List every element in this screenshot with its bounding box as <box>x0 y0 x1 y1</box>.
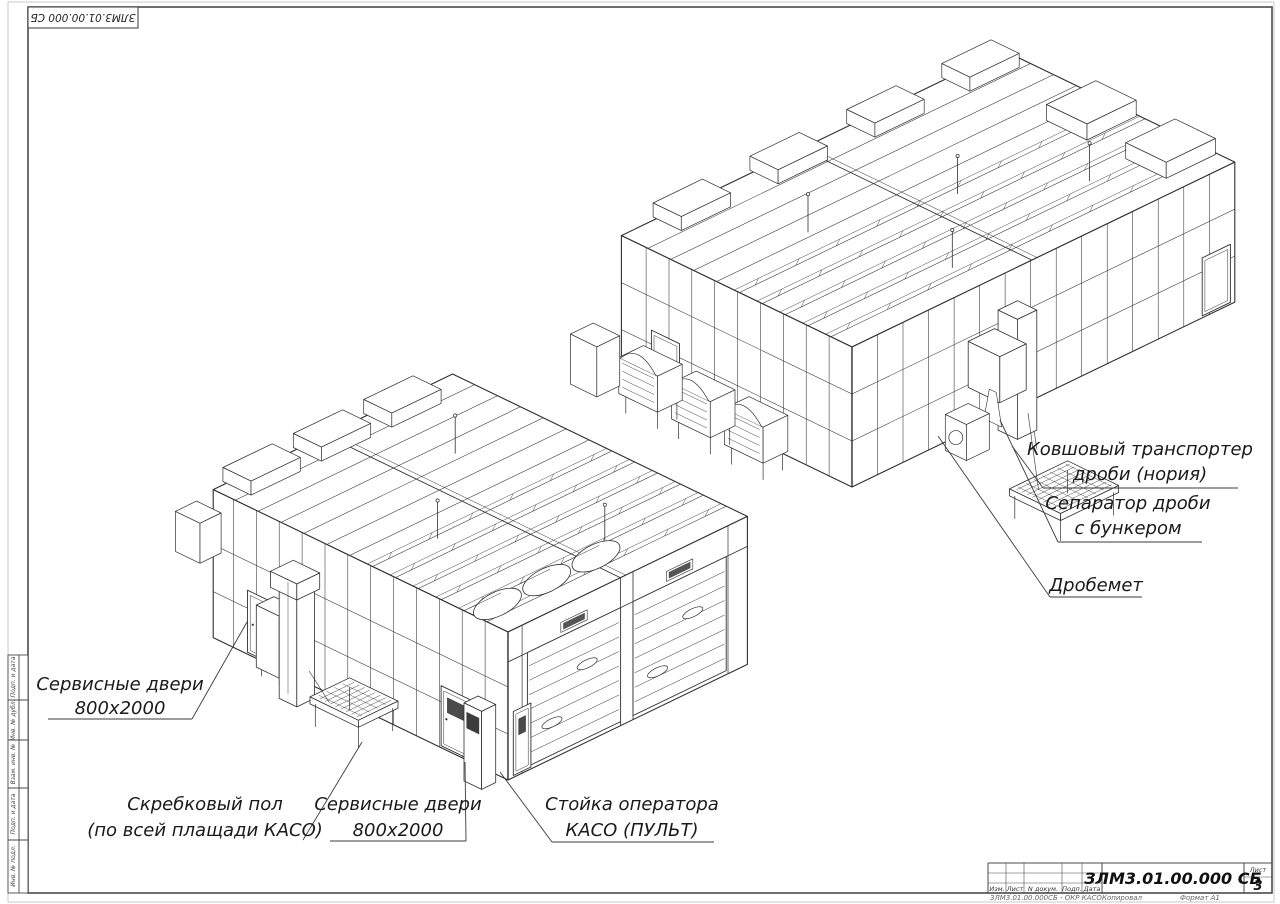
side-stamp-cell-label: Подп. и дата <box>10 793 17 834</box>
label-scraper-floor: (по всей плащади КАСО) <box>87 820 323 841</box>
side-stamp-cell-label: Инв. № подл. <box>10 845 17 886</box>
side-stamp-labels: Подп. и дата Инв. № дубл. Взам. инв. № П… <box>10 656 17 886</box>
label-shot-blaster: Дробемет <box>1048 575 1143 596</box>
drawing-sheet: ЗЛМ3.01.00.000 СБ Подп. и дата Инв. № ду… <box>0 0 1280 904</box>
tb-col-list: Лист <box>1006 885 1024 893</box>
label-shot-separator: с бункером <box>1074 518 1181 539</box>
side-stamp-cell-label: Взам. инв. № <box>10 744 17 785</box>
top-stamp-doc-number: ЗЛМ3.01.00.000 СБ <box>30 11 135 23</box>
tb-sheet-number: 3 <box>1253 879 1262 894</box>
footer-doc-ref: ЗЛМ3.01.00.000СБ - ОКР КАСО <box>990 894 1102 902</box>
label-service-door-front: Сервисные двери <box>314 794 482 815</box>
tb-col-izm: Изм. <box>989 885 1004 893</box>
side-stamp-cell-label: Подп. и дата <box>10 656 17 697</box>
label-operator-stand: КАСО (ПУЛЬТ) <box>566 820 699 841</box>
tb-doc-number: ЗЛМ3.01.00.000 СБ <box>1083 869 1261 888</box>
label-bucket-conveyor: дроби (нория) <box>1072 464 1207 485</box>
tb-sheet-label: Лист <box>1249 866 1267 874</box>
label-service-door-front: 800х2000 <box>353 820 444 841</box>
label-service-door-left: Сервисные двери <box>36 674 204 695</box>
tb-col-docum: N докум. <box>1028 885 1058 893</box>
cad-drawing-canvas: ЗЛМ3.01.00.000 СБ Подп. и дата Инв. № ду… <box>0 0 1280 904</box>
side-stamp-cell-label: Инв. № дубл. <box>10 699 17 740</box>
label-scraper-floor: Скребковый пол <box>127 794 282 815</box>
footer-format: Формат А1 <box>1180 894 1220 902</box>
label-operator-stand: Стойка оператора <box>545 794 719 815</box>
label-shot-separator: Сепаратор дроби <box>1045 493 1211 514</box>
top-left-stamp: ЗЛМ3.01.00.000 СБ <box>28 7 138 28</box>
tb-col-podp: Подп. <box>1062 885 1082 893</box>
label-service-door-left: 800х2000 <box>75 698 166 719</box>
footer-copied-by: Копировал <box>1102 894 1143 902</box>
label-bucket-conveyor: Ковшовый транспортер <box>1027 439 1253 460</box>
